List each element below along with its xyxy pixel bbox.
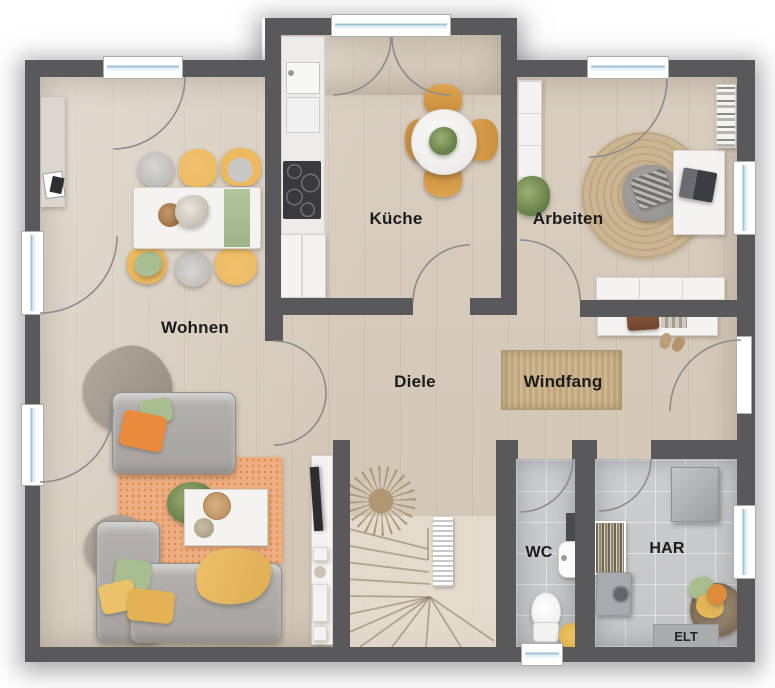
wall-wc-left	[496, 440, 516, 662]
entrance-door-leaf	[736, 336, 752, 414]
wall-exterior-bottom	[25, 647, 755, 662]
table-runner	[224, 189, 250, 247]
floor-plan: ELT Wohnen Küche Arbei	[0, 0, 775, 688]
window-har-right	[733, 505, 756, 579]
wall-stairs-left	[333, 440, 350, 662]
window-living-left-2	[21, 404, 44, 486]
pillow-yellow	[126, 588, 175, 625]
laptop	[679, 167, 718, 202]
dried-plant	[346, 466, 416, 536]
wall-wc-top-b	[572, 440, 597, 459]
dining-chair	[175, 251, 211, 287]
window-living-top	[103, 56, 183, 79]
washing-machine	[595, 571, 632, 616]
coffee-table-tray	[203, 492, 231, 520]
lowboard-item	[313, 626, 327, 641]
window-wc-bottom	[521, 643, 563, 666]
drying-rack	[594, 521, 626, 575]
window-living-left-1	[21, 231, 44, 315]
wall-living-hall-stub	[265, 315, 283, 341]
kitchen-base-cabinet	[278, 234, 326, 298]
room-label-har: HAR	[649, 540, 684, 558]
dining-chair	[138, 152, 174, 188]
wall-living-kitchen	[265, 35, 281, 298]
room-label-kueche: Küche	[370, 209, 423, 229]
elt-label: ELT	[674, 629, 698, 644]
kitchen-sink-basin	[286, 97, 320, 133]
faucet	[288, 70, 294, 76]
table-plant	[429, 127, 457, 155]
elt-cabinet: ELT	[653, 624, 719, 649]
coffee-table-vase	[194, 518, 214, 538]
bookshelf	[716, 84, 736, 148]
toilet-tank	[533, 622, 559, 642]
lowboard-candle	[314, 566, 326, 578]
laundry-orange	[707, 584, 727, 604]
wall-wc-top-a	[496, 440, 518, 459]
room-label-windfang: Windfang	[524, 372, 603, 392]
boiler	[671, 467, 719, 522]
wall-har-top	[651, 440, 737, 459]
sink-faucet	[561, 555, 567, 561]
wall-kitchen-bottom-right	[470, 298, 517, 315]
dining-chair	[221, 148, 261, 186]
cooktop	[283, 161, 321, 219]
wall-office-bottom	[580, 300, 755, 317]
wall-exterior-left	[25, 60, 40, 662]
room-label-arbeiten: Arbeiten	[533, 209, 604, 229]
dining-chair	[179, 149, 217, 187]
window-office-right	[733, 161, 756, 235]
dining-chair	[215, 247, 257, 285]
office-sideboard	[596, 277, 725, 300]
wall-wc-har	[575, 440, 595, 662]
lowboard-item	[313, 547, 328, 561]
window-office-top	[587, 56, 669, 79]
wall-kitchen-office	[501, 35, 517, 300]
room-label-wc: WC	[525, 544, 552, 562]
room-label-diele: Diele	[394, 372, 436, 392]
wall-kitchen-bottom-left	[265, 298, 413, 315]
lowboard-item	[312, 584, 328, 622]
radiator	[433, 517, 453, 587]
kitchen-sink	[286, 62, 320, 94]
room-label-wohnen: Wohnen	[161, 318, 229, 338]
window-kitchen	[331, 14, 451, 37]
